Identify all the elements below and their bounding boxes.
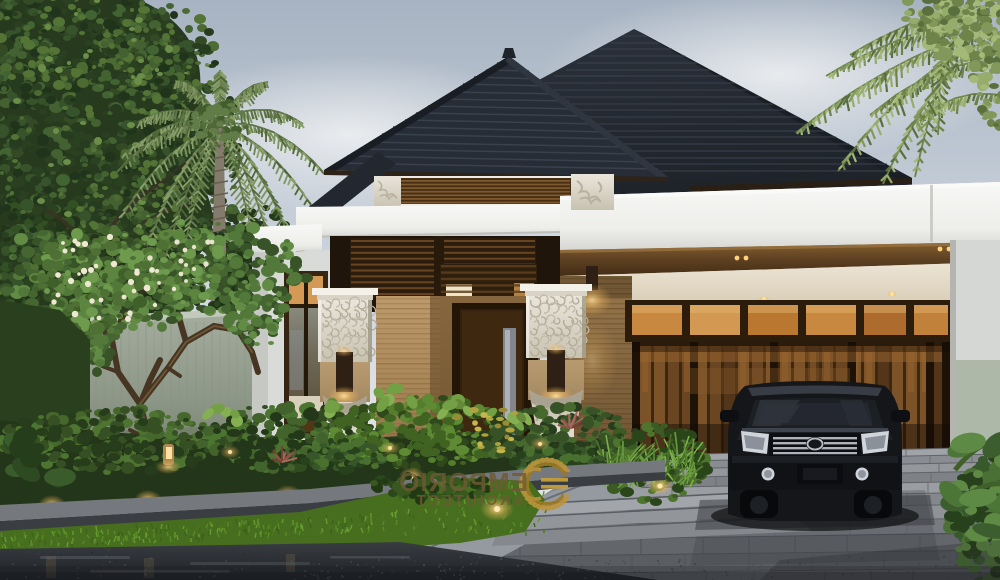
svg-text:ARCHITECT: ARCHITECT — [414, 492, 524, 509]
